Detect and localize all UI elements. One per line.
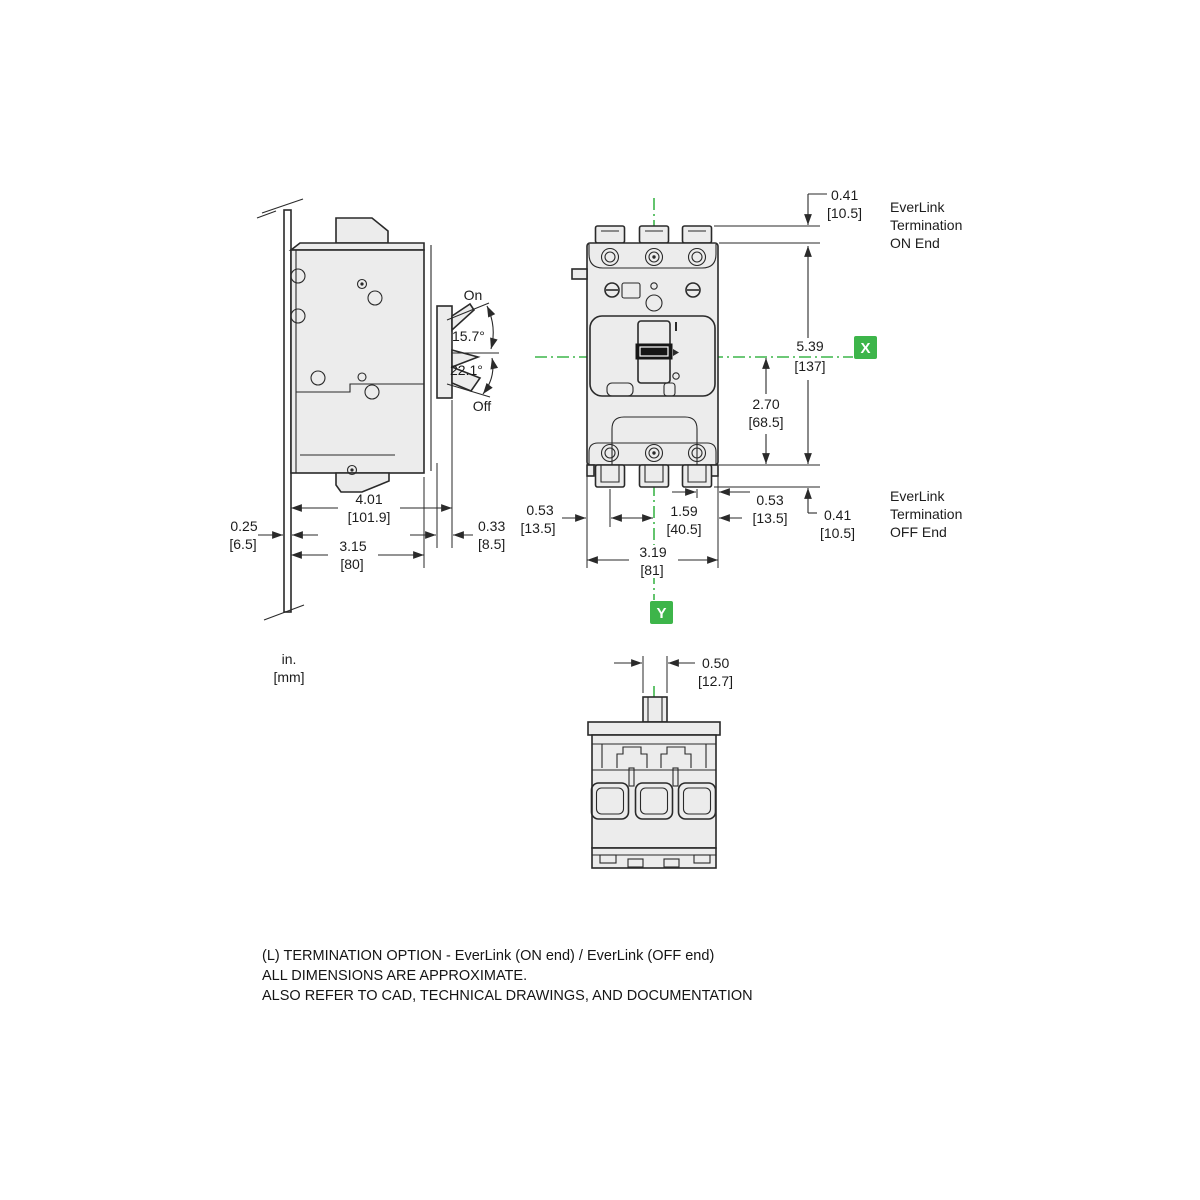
on-end-note-line2: Termination [890,217,962,233]
dim-tab-bottom-in: 0.41 [824,507,851,523]
on-label: On [464,287,483,303]
dim-body-width-mm: [81] [640,562,663,578]
off-end-note-line1: EverLink [890,488,945,504]
dim-escutcheon-depth-mm: [8.5] [478,536,505,552]
dim-handle-width-in: 0.50 [702,655,729,671]
dim-pole-right-in: 0.53 [756,492,783,508]
x-axis-letter: X [860,340,870,357]
dim-body-depth-in: 3.15 [339,538,366,554]
angle-off-value: 22.1° [450,362,483,378]
panel-break-mark-top [262,199,303,213]
front-view [572,226,718,487]
side-top-terminal-tab [336,218,388,243]
angle-arc-off [483,358,493,394]
mounting-panel [284,210,291,612]
on-end-note: EverLink Termination ON End [890,199,962,251]
dim-total-depth-mm: [101.9] [348,509,391,525]
footer-line-termination: (L) TERMINATION OPTION - EverLink (ON en… [262,946,753,966]
dim-escutcheon-depth-in: 0.33 [478,518,505,534]
bottom-view: 0.50 [12.7] [588,655,733,868]
side-escutcheon [437,306,452,398]
angle-arc-on [487,306,493,349]
dim-pole-left-in: 0.53 [526,502,553,518]
dim-body-height-in: 5.39 [796,338,823,354]
off-end-note-line2: Termination [890,506,962,522]
bottom-escutcheon-plate [588,722,720,735]
side-view: On 15.7° 22.1° Off 4.01 [101.9] 0.25 [6.… [229,199,505,620]
y-axis-letter: Y [656,605,666,622]
breaker-dimension-drawing: On 15.7° 22.1° Off 4.01 [101.9] 0.25 [6.… [0,0,1200,1200]
side-top-flange [291,243,424,250]
footer-notes: (L) TERMINATION OPTION - EverLink (ON en… [262,946,753,1006]
y-axis-marker: Y [650,601,673,624]
dim-panel-thickness-mm: [6.5] [229,536,256,552]
front-top-terminals [596,226,712,243]
dim-body-width-in: 3.19 [639,544,666,560]
dim-handle-width-mm: [12.7] [698,673,733,689]
off-end-note: EverLink Termination OFF End [890,488,962,540]
dim-tab-top-mm: [10.5] [827,205,862,221]
dim-body-height-mm: [137] [794,358,825,374]
x-axis-marker: X [854,336,877,359]
side-bottom-terminal-tab [336,473,389,492]
dim-pole-right-mm: [13.5] [752,510,787,526]
bottom-body [592,735,716,848]
units-mm: [mm] [273,669,304,685]
angle-on-value: 15.7° [452,328,485,344]
footer-line-approximate: ALL DIMENSIONS ARE APPROXIMATE. [262,966,753,986]
toggle-handle [636,344,672,359]
footer-line-refer: ALSO REFER TO CAD, TECHNICAL DRAWINGS, A… [262,986,753,1006]
bottom-base [592,848,716,868]
on-end-note-line1: EverLink [890,199,945,215]
dim-pole-left-mm: [13.5] [520,520,555,536]
dim-body-depth-mm: [80] [340,556,363,572]
dim-panel-thickness-in: 0.25 [230,518,257,534]
dim-center-bottom-mm: [68.5] [748,414,783,430]
dim-tab-bottom-mm: [10.5] [820,525,855,541]
front-bottom-terminals [587,465,718,487]
dim-total-depth-in: 4.01 [355,491,382,507]
dim-tab-top-in: 0.41 [831,187,858,203]
dim-half-width-mm: [40.5] [666,521,701,537]
front-left-protrusion [572,269,587,279]
panel-break-tick-top [257,211,276,218]
units-inches: in. [282,651,297,667]
technical-drawing-page: On 15.7° 22.1° Off 4.01 [101.9] 0.25 [6.… [0,0,1200,1200]
on-end-note-line3: ON End [890,235,940,251]
off-label: Off [473,398,492,414]
bottom-handle [643,697,667,722]
dim-half-width-in: 1.59 [670,503,697,519]
units-note: in. [mm] [273,651,304,685]
off-end-note-line3: OFF End [890,524,947,540]
dim-center-bottom-in: 2.70 [752,396,779,412]
